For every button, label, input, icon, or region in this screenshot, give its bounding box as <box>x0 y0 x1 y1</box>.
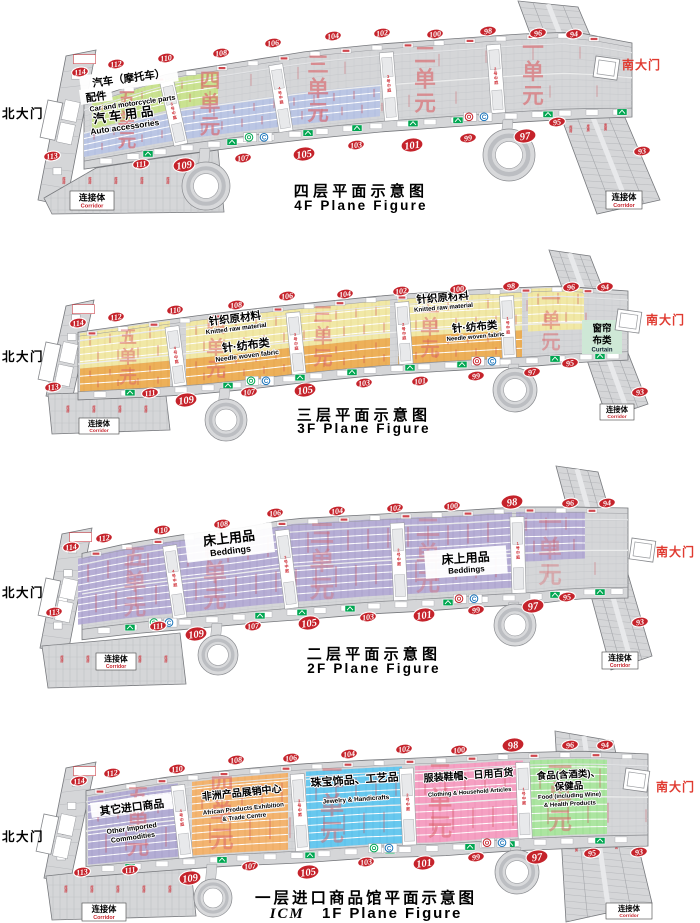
svg-text:一: 一 <box>541 290 560 311</box>
svg-text:元: 元 <box>313 347 332 369</box>
svg-text:元: 元 <box>541 333 560 354</box>
svg-text:房: 房 <box>63 888 67 893</box>
svg-text:Corridor: Corridor <box>613 203 635 209</box>
svg-text:113: 113 <box>46 151 59 162</box>
svg-text:99: 99 <box>463 133 472 143</box>
svg-text:102: 102 <box>397 744 410 755</box>
svg-text:98: 98 <box>506 281 515 291</box>
svg-text:107: 107 <box>242 387 256 398</box>
svg-text:105: 105 <box>300 867 317 880</box>
svg-text:房: 房 <box>89 888 93 893</box>
svg-text:元: 元 <box>548 808 572 835</box>
svg-text:单: 单 <box>307 76 329 101</box>
svg-text:110: 110 <box>169 305 182 316</box>
svg-text:Corridor: Corridor <box>619 913 638 919</box>
svg-text:108: 108 <box>229 300 242 311</box>
svg-text:北大门: 北大门 <box>2 829 44 844</box>
svg-text:114: 114 <box>73 776 86 787</box>
svg-text:109: 109 <box>176 160 194 173</box>
svg-text:2F Plane Figure: 2F Plane Figure <box>307 661 441 676</box>
svg-text:100: 100 <box>445 501 458 512</box>
svg-text:106: 106 <box>266 38 279 49</box>
svg-text:101: 101 <box>416 610 433 623</box>
svg-text:113: 113 <box>76 867 89 878</box>
svg-text:110: 110 <box>160 53 173 64</box>
svg-text:96: 96 <box>533 28 542 38</box>
svg-text:元: 元 <box>310 576 335 603</box>
svg-text:元: 元 <box>124 595 146 620</box>
svg-text:Corridor: Corridor <box>81 204 105 210</box>
svg-text:二: 二 <box>414 42 436 67</box>
svg-text:99: 99 <box>471 371 480 381</box>
svg-text:94: 94 <box>569 29 578 39</box>
svg-text:连接体: 连接体 <box>104 654 128 664</box>
svg-text:110: 110 <box>156 525 169 536</box>
svg-text:一: 一 <box>522 36 544 60</box>
svg-text:95: 95 <box>552 117 561 127</box>
svg-text:房: 房 <box>165 180 169 185</box>
svg-text:112: 112 <box>106 768 119 779</box>
svg-text:104: 104 <box>326 31 339 42</box>
svg-text:96: 96 <box>565 498 574 508</box>
svg-text:108: 108 <box>215 519 228 530</box>
svg-text:元: 元 <box>119 367 137 387</box>
svg-text:南大门: 南大门 <box>622 57 661 72</box>
svg-text:连接体: 连接体 <box>612 192 638 202</box>
svg-text:Corridor: Corridor <box>106 664 126 670</box>
svg-text:114: 114 <box>74 67 87 78</box>
svg-text:一: 一 <box>538 509 561 535</box>
svg-text:C: C <box>387 846 392 852</box>
svg-text:房: 房 <box>65 408 69 413</box>
svg-text:104: 104 <box>330 506 343 517</box>
svg-text:93: 93 <box>635 617 644 627</box>
svg-text:房: 房 <box>61 180 65 185</box>
svg-text:元: 元 <box>210 826 233 852</box>
svg-text:93: 93 <box>635 387 644 397</box>
svg-text:112: 112 <box>110 312 123 323</box>
svg-text:单: 单 <box>313 325 332 348</box>
svg-text:93: 93 <box>634 847 643 857</box>
svg-text:北大门: 北大门 <box>2 106 44 121</box>
svg-text:单: 单 <box>522 60 544 84</box>
svg-text:房: 房 <box>91 408 95 413</box>
svg-text:四: 四 <box>200 69 221 92</box>
svg-text:三: 三 <box>307 52 329 77</box>
svg-text:北大门: 北大门 <box>2 585 44 600</box>
svg-text:C: C <box>482 115 487 121</box>
svg-text:ICM 1F Plane Figure: ICM 1F Plane Figure <box>269 905 462 922</box>
svg-text:五: 五 <box>124 545 146 570</box>
svg-text:105: 105 <box>297 385 314 398</box>
svg-text:100: 100 <box>452 745 465 756</box>
svg-text:102: 102 <box>375 28 388 39</box>
svg-text:99: 99 <box>471 852 480 862</box>
svg-text:96: 96 <box>566 282 575 292</box>
svg-text:109: 109 <box>182 873 200 886</box>
svg-text:103: 103 <box>349 140 362 151</box>
svg-text:北大门: 北大门 <box>2 349 44 364</box>
svg-text:元: 元 <box>538 562 561 588</box>
svg-text:94: 94 <box>600 740 609 750</box>
svg-text:C: C <box>500 841 505 847</box>
svg-text:二: 二 <box>416 515 440 542</box>
svg-text:房: 房 <box>143 408 147 413</box>
svg-text:房: 房 <box>87 180 91 185</box>
svg-text:Corridor: Corridor <box>610 663 630 669</box>
svg-text:连接体: 连接体 <box>79 192 105 203</box>
svg-text:连接体: 连接体 <box>606 405 629 414</box>
svg-text:元: 元 <box>320 819 344 846</box>
svg-text:单: 单 <box>538 535 561 561</box>
svg-text:109: 109 <box>178 395 196 408</box>
svg-text:93: 93 <box>637 146 646 156</box>
svg-text:104: 104 <box>342 749 355 760</box>
svg-text:南大门: 南大门 <box>656 544 695 559</box>
svg-text:106: 106 <box>280 291 293 302</box>
svg-text:房: 房 <box>586 127 590 132</box>
svg-text:C: C <box>490 359 495 365</box>
svg-text:98: 98 <box>483 26 492 36</box>
svg-text:Corridor: Corridor <box>607 414 626 420</box>
svg-text:单: 单 <box>414 67 436 92</box>
svg-text:五: 五 <box>119 327 137 347</box>
svg-text:单: 单 <box>124 570 146 595</box>
svg-text:房: 房 <box>163 658 167 663</box>
svg-text:102: 102 <box>394 286 407 297</box>
svg-text:房: 房 <box>568 128 572 133</box>
svg-text:房: 房 <box>113 180 117 185</box>
svg-text:96: 96 <box>565 740 574 750</box>
svg-text:元: 元 <box>428 815 452 842</box>
svg-text:单: 单 <box>119 346 137 367</box>
svg-text:107: 107 <box>243 861 257 872</box>
svg-text:4F Plane Figure: 4F Plane Figure <box>294 198 428 213</box>
svg-text:112: 112 <box>110 59 123 70</box>
svg-text:单: 单 <box>203 560 227 586</box>
svg-text:Curtain: Curtain <box>592 348 613 354</box>
svg-text:连接体: 连接体 <box>618 904 641 913</box>
svg-text:南大门: 南大门 <box>656 779 695 794</box>
svg-text:单: 单 <box>310 548 335 576</box>
svg-text:房: 房 <box>137 658 141 663</box>
svg-text:单: 单 <box>420 316 440 339</box>
svg-text:元: 元 <box>200 116 221 139</box>
svg-text:94: 94 <box>602 498 611 508</box>
svg-text:房: 房 <box>603 126 607 131</box>
svg-text:连接体: 连接体 <box>88 419 111 428</box>
svg-text:101: 101 <box>416 858 433 871</box>
svg-text:窗帘: 窗帘 <box>592 323 612 335</box>
svg-text:112: 112 <box>98 533 111 544</box>
svg-text:108: 108 <box>229 755 242 766</box>
svg-text:房: 房 <box>59 658 63 663</box>
svg-text:111: 111 <box>124 865 136 875</box>
svg-text:Corridor: Corridor <box>93 915 115 921</box>
svg-text:连接体: 连接体 <box>92 904 118 914</box>
svg-text:111: 111 <box>144 388 156 398</box>
svg-text:元: 元 <box>203 586 227 612</box>
svg-text:房: 房 <box>117 408 121 413</box>
svg-text:99: 99 <box>471 605 480 615</box>
svg-text:101: 101 <box>413 376 426 387</box>
svg-text:三: 三 <box>313 304 332 326</box>
svg-text:110: 110 <box>171 764 184 775</box>
svg-text:108: 108 <box>214 48 227 59</box>
svg-text:95: 95 <box>565 358 574 368</box>
svg-text:C: C <box>262 136 267 142</box>
svg-text:114: 114 <box>72 318 85 329</box>
svg-text:103: 103 <box>359 857 372 868</box>
svg-text:单: 单 <box>541 309 560 332</box>
svg-text:C: C <box>472 597 477 603</box>
svg-text:95: 95 <box>587 848 596 858</box>
svg-text:元: 元 <box>414 91 436 116</box>
svg-text:109: 109 <box>188 629 206 642</box>
svg-text:111: 111 <box>135 159 147 169</box>
svg-text:Corridor: Corridor <box>89 428 108 434</box>
svg-text:104: 104 <box>338 289 351 300</box>
svg-text:房: 房 <box>85 658 89 663</box>
svg-text:113: 113 <box>48 607 61 618</box>
svg-text:113: 113 <box>47 382 60 393</box>
svg-text:房: 房 <box>115 888 119 893</box>
svg-text:100: 100 <box>451 284 464 295</box>
svg-text:保健品: 保健品 <box>553 780 583 794</box>
svg-text:100: 100 <box>428 29 441 40</box>
svg-text:元: 元 <box>118 130 137 151</box>
svg-text:元: 元 <box>307 100 329 125</box>
svg-text:C: C <box>264 379 269 385</box>
svg-text:111: 111 <box>152 621 164 631</box>
svg-text:106: 106 <box>268 508 281 519</box>
svg-text:单: 单 <box>200 91 221 115</box>
svg-text:三: 三 <box>310 521 335 548</box>
svg-text:95: 95 <box>562 592 571 602</box>
svg-text:105: 105 <box>296 149 313 162</box>
svg-text:103: 103 <box>361 612 374 623</box>
svg-text:103: 103 <box>357 378 370 389</box>
svg-text:101: 101 <box>404 140 421 153</box>
svg-text:布类: 布类 <box>591 334 612 346</box>
svg-text:107: 107 <box>236 153 250 164</box>
svg-text:元: 元 <box>420 339 440 361</box>
svg-text:元: 元 <box>522 84 544 108</box>
svg-text:房: 房 <box>141 888 145 893</box>
svg-text:106: 106 <box>284 753 297 764</box>
svg-text:C: C <box>167 621 172 627</box>
svg-text:114: 114 <box>65 542 78 553</box>
svg-text:3F Plane Figure: 3F Plane Figure <box>297 421 431 436</box>
svg-text:房: 房 <box>139 180 143 185</box>
svg-text:94: 94 <box>600 282 609 292</box>
svg-text:102: 102 <box>388 503 401 514</box>
svg-text:房: 房 <box>167 888 171 893</box>
svg-text:107: 107 <box>246 621 260 632</box>
svg-text:连接体: 连接体 <box>608 653 632 663</box>
svg-text:105: 105 <box>301 618 318 631</box>
svg-text:南大门: 南大门 <box>646 312 685 327</box>
